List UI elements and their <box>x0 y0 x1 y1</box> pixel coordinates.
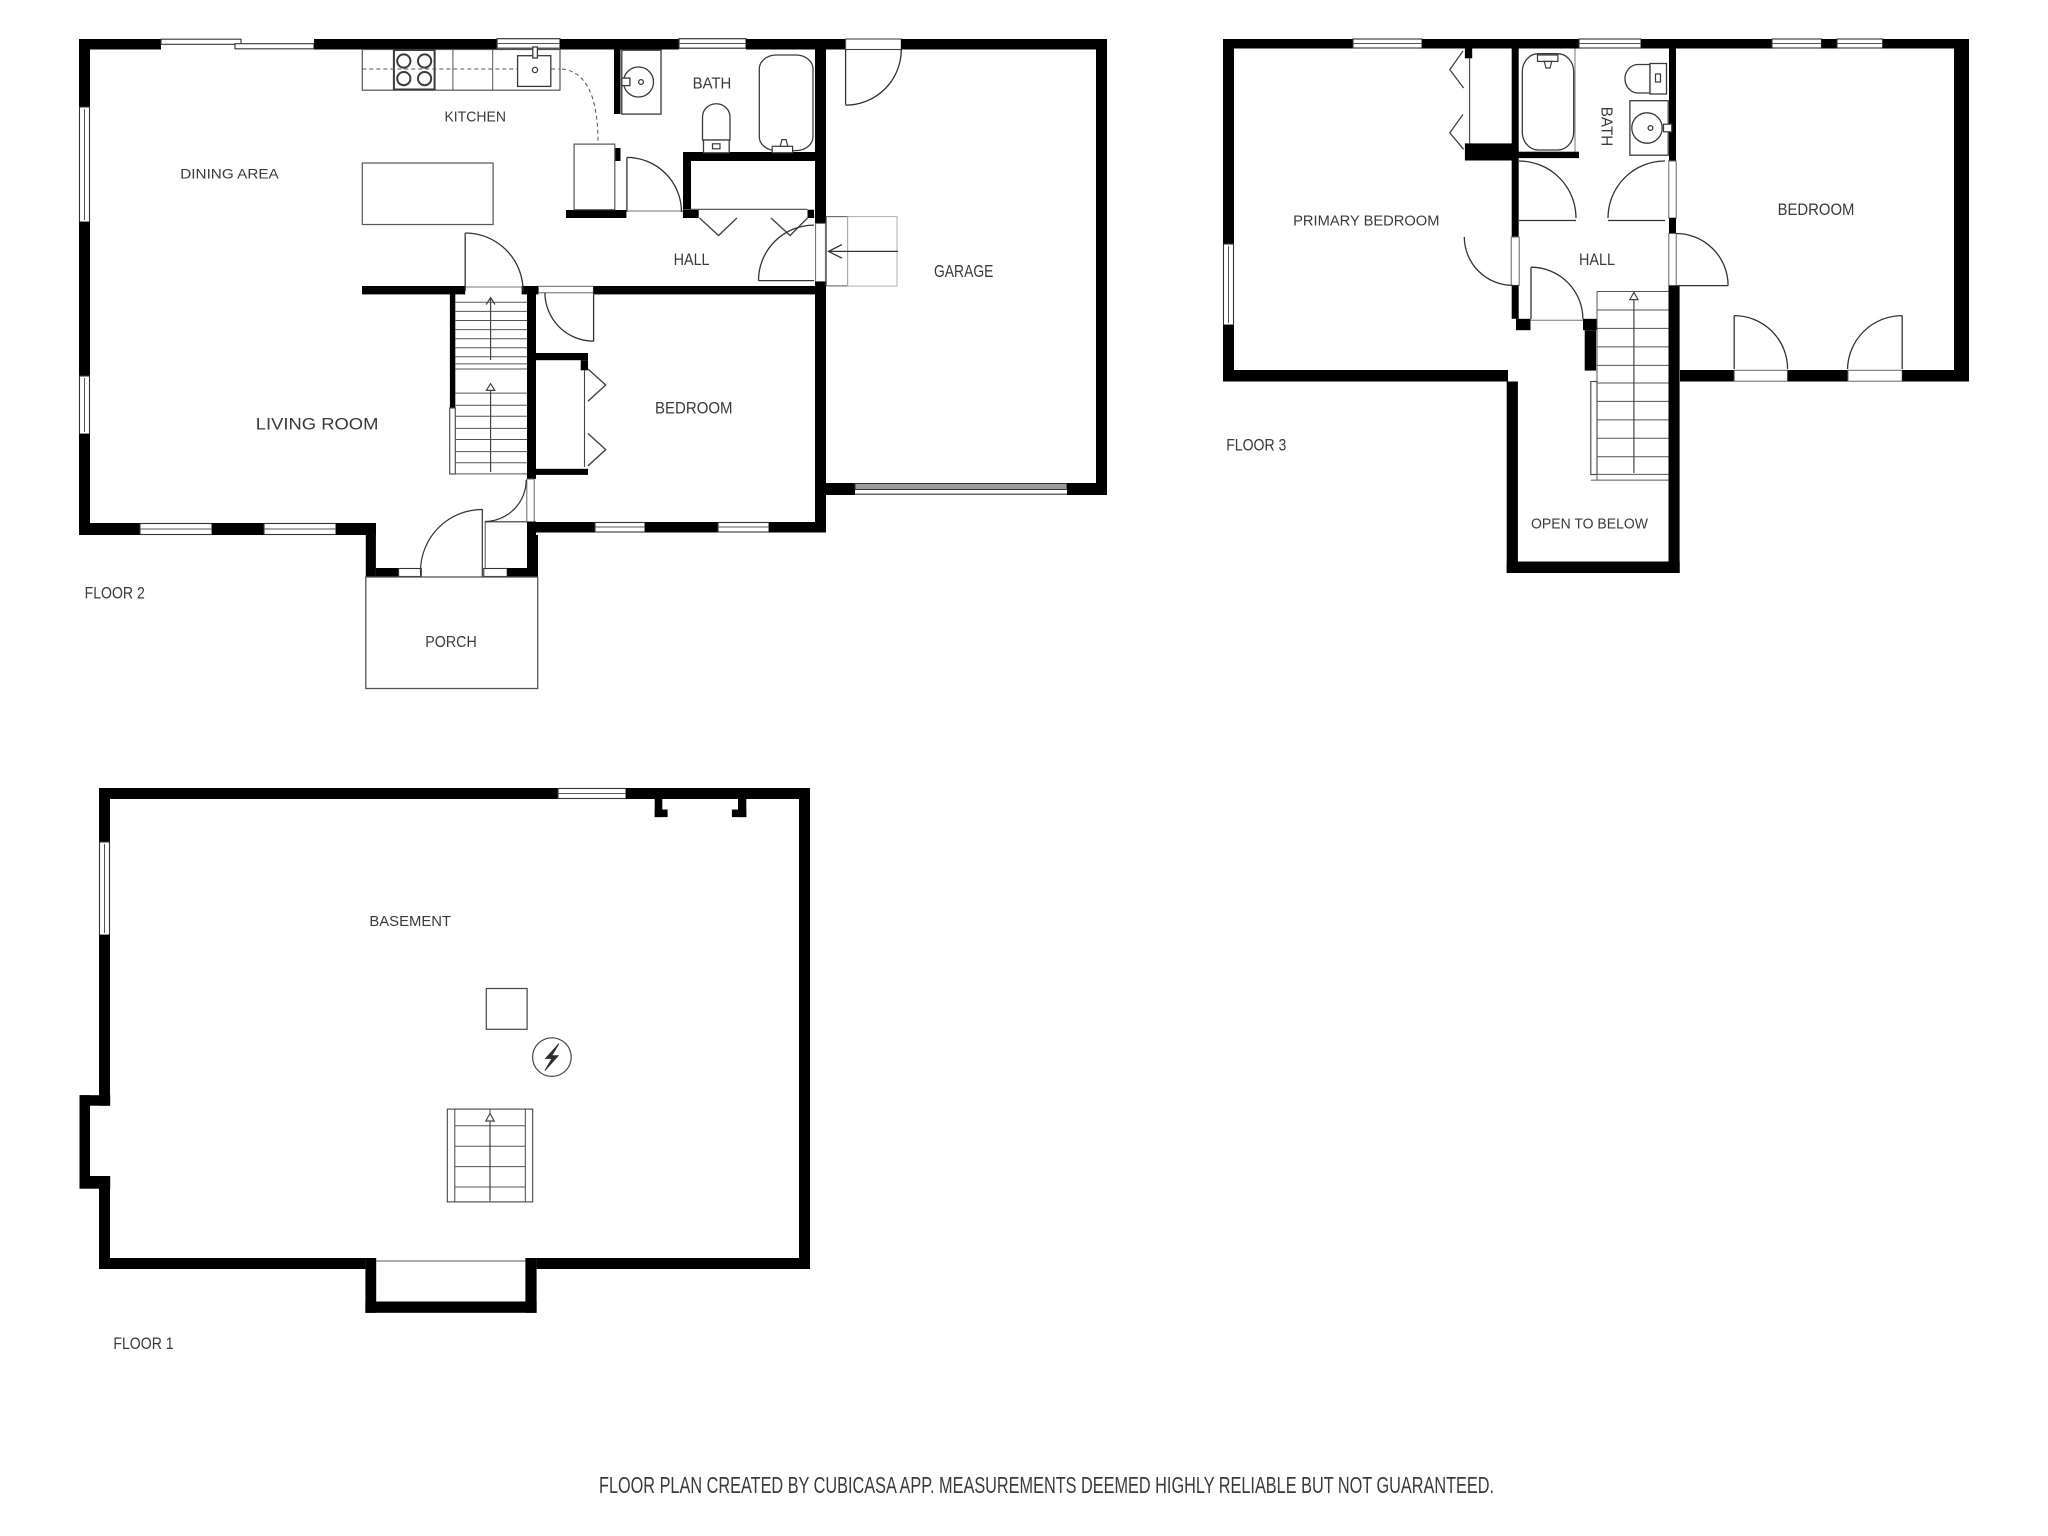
svg-text:PRIMARY BEDROOM: PRIMARY BEDROOM <box>1293 214 1439 230</box>
svg-text:FLOOR 3: FLOOR 3 <box>1226 436 1286 455</box>
svg-text:FLOOR 1: FLOOR 1 <box>113 1334 173 1353</box>
svg-text:PORCH: PORCH <box>425 634 477 651</box>
svg-text:FLOOR 2: FLOOR 2 <box>85 584 145 603</box>
svg-text:BEDROOM: BEDROOM <box>655 399 733 418</box>
svg-text:DINING AREA: DINING AREA <box>180 166 279 182</box>
svg-text:HALL: HALL <box>674 250 710 269</box>
svg-text:KITCHEN: KITCHEN <box>444 109 506 126</box>
svg-text:BEDROOM: BEDROOM <box>1778 201 1855 219</box>
svg-text:BATH: BATH <box>693 76 732 93</box>
svg-text:FLOOR PLAN CREATED BY CUBICASA: FLOOR PLAN CREATED BY CUBICASA APP. MEAS… <box>599 1472 1494 1498</box>
svg-text:LIVING ROOM: LIVING ROOM <box>256 414 379 433</box>
svg-text:BATH: BATH <box>1598 107 1615 147</box>
svg-text:GARAGE: GARAGE <box>934 261 993 281</box>
svg-text:HALL: HALL <box>1579 250 1615 269</box>
svg-text:BASEMENT: BASEMENT <box>369 914 451 930</box>
svg-text:OPEN TO BELOW: OPEN TO BELOW <box>1531 517 1648 533</box>
